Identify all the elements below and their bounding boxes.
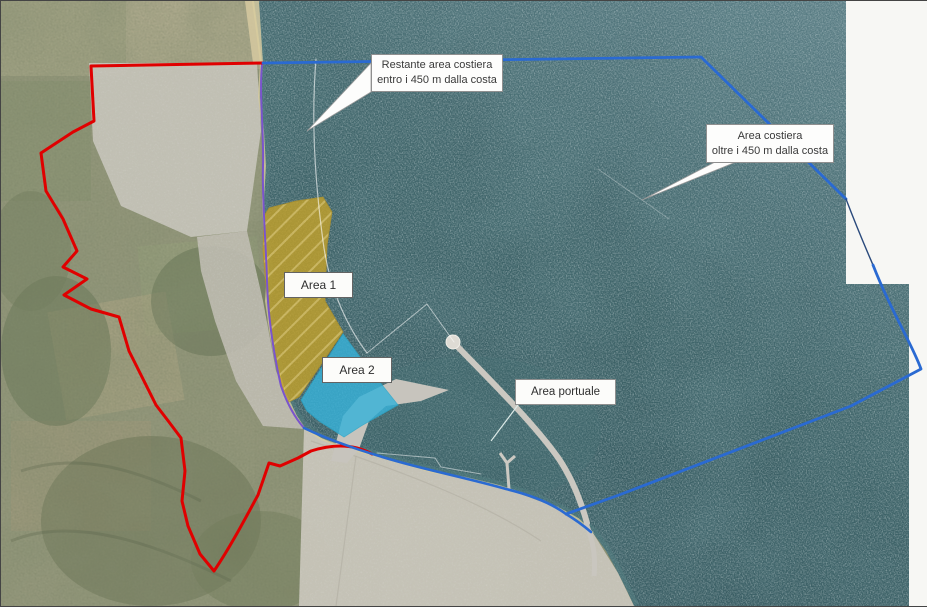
port-label: Area portuale (531, 386, 600, 398)
port-label-box: Area portuale (515, 379, 616, 405)
photo-gap-top-right (846, 1, 927, 284)
area2-label: Area 2 (339, 363, 374, 377)
callout-restante-line1: Restante area costiera (375, 58, 499, 73)
callout-restante-box: Restante area costiera entro i 450 m dal… (371, 54, 503, 92)
callout-oltre-box: Area costiera oltre i 450 m dalla costa (706, 124, 834, 163)
area1-label-box: Area 1 (284, 272, 353, 298)
callout-oltre-line1: Area costiera (710, 129, 830, 144)
callout-oltre-line2: oltre i 450 m dalla costa (710, 144, 830, 159)
area1-label: Area 1 (301, 278, 336, 292)
photo-gap-right-strip (909, 284, 927, 606)
aerial-map: Restante area costiera entro i 450 m dal… (0, 0, 927, 607)
area2-label-box: Area 2 (322, 357, 392, 383)
breakwater-head (446, 335, 460, 349)
callout-restante-line2: entro i 450 m dalla costa (375, 73, 499, 88)
